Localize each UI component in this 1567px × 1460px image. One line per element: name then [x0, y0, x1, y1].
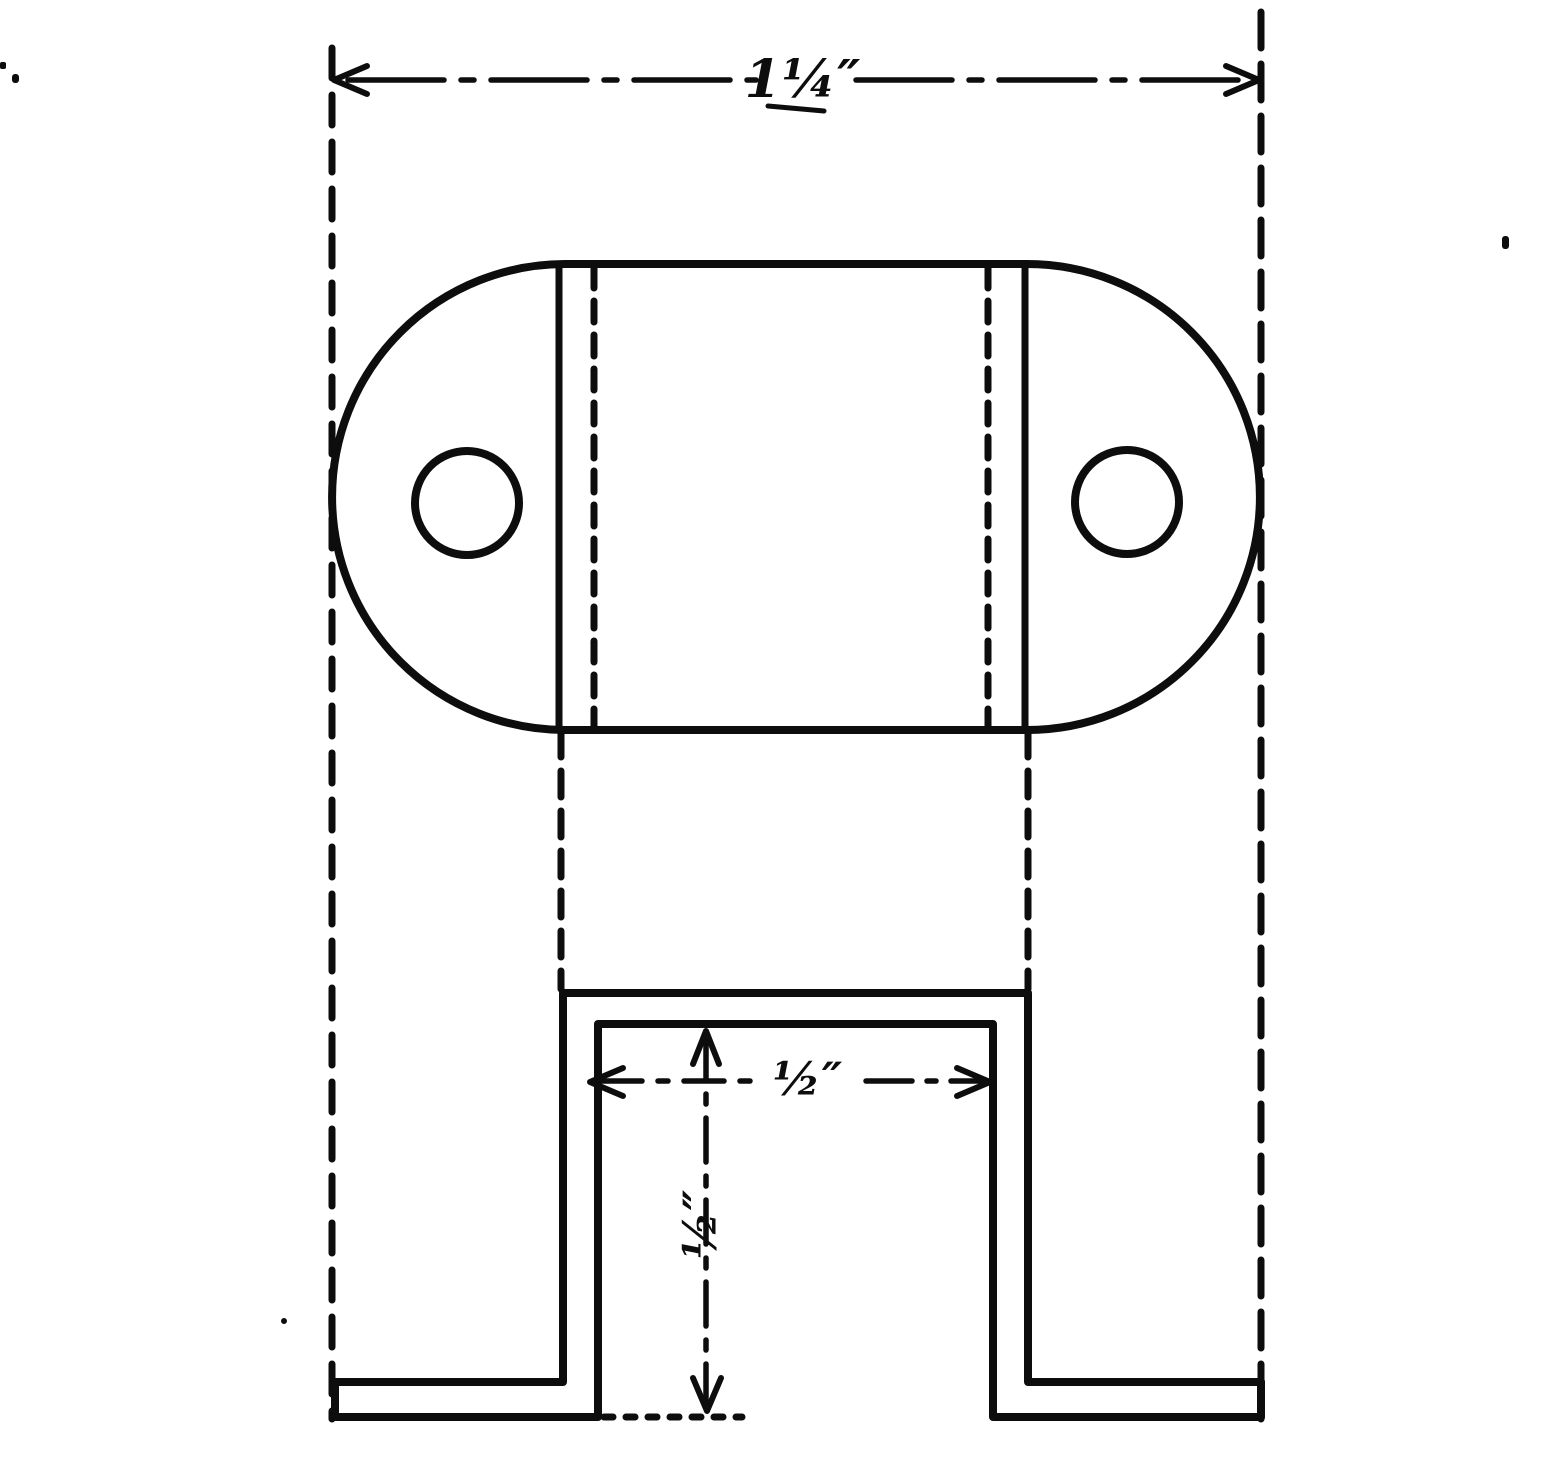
stadium-outline: [332, 264, 1260, 730]
slot-depth-label: ½″: [673, 1189, 727, 1260]
overall-width-label: 1¼″: [745, 49, 862, 110]
speck: [281, 1318, 287, 1324]
slot-width-dimension: ½″: [590, 1052, 990, 1106]
right-hole: [1075, 450, 1179, 554]
drawing-sheet: 1¼″ ½″ ½″: [0, 0, 1567, 1460]
scan-specks: [0, 62, 1509, 1324]
top-view: [332, 264, 1260, 730]
slot-depth-dimension: ½″: [673, 1031, 727, 1411]
speck: [12, 74, 19, 83]
bracket-drawing: 1¼″ ½″ ½″: [0, 0, 1567, 1460]
left-hole: [415, 451, 519, 555]
overall-width-dimension: 1¼″: [334, 49, 1259, 111]
construction-lines: [332, 12, 1261, 1419]
speck: [0, 62, 6, 69]
slot-width-label: ½″: [773, 1052, 844, 1106]
speck: [1502, 236, 1509, 249]
